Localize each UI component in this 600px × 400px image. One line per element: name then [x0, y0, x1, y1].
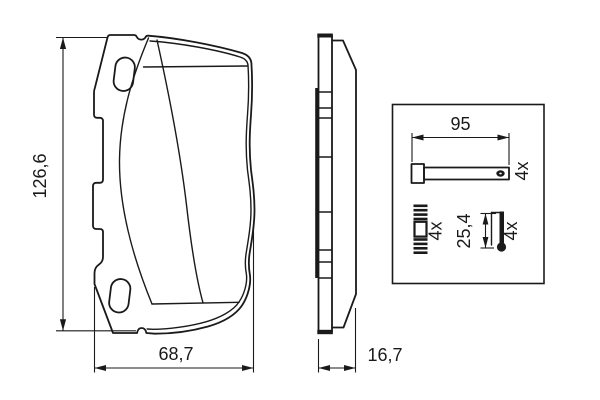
friction-chamfer-curve [157, 40, 203, 303]
spring-quantity-label: 4x [426, 221, 446, 240]
pin-hole-center [499, 173, 502, 175]
retaining-pin [412, 164, 510, 183]
pin-length-label: 95 [450, 114, 470, 134]
pin-head [412, 164, 425, 183]
side-backing-plate [319, 35, 333, 332]
friction-top-edge [144, 66, 248, 67]
hardware-box: 95 4x 4x [393, 105, 545, 284]
thickness-dimension-label: 16,7 [367, 345, 402, 365]
backing-plate-outline [93, 35, 255, 334]
dimension-width: 68,7 [95, 226, 254, 373]
friction-bottom-edge [152, 302, 239, 304]
dimension-sleeve-length: 25,4 [454, 213, 496, 248]
friction-left-curve [119, 38, 152, 304]
pin-shaft [424, 168, 509, 180]
shim-strip [315, 88, 318, 278]
lower-slot-hole [108, 278, 131, 314]
dimension-pin-length: 95 [412, 114, 509, 165]
sleeve-ball-end [497, 242, 506, 251]
side-view [315, 34, 356, 335]
plate-top-cap [317, 34, 333, 38]
brake-pad-drawing: 126,6 68,7 16,7 [0, 0, 600, 400]
front-view [93, 35, 255, 334]
plate-bottom-cap [317, 330, 333, 334]
spring-coil-top [414, 205, 428, 221]
side-friction-profile [332, 41, 356, 328]
clip-section-lines [319, 92, 333, 278]
sleeve-quantity-label: 4x [501, 221, 521, 240]
width-dimension-label: 68,7 [158, 344, 193, 364]
height-dimension-label: 126,6 [30, 153, 50, 198]
pin-quantity-label: 4x [512, 161, 532, 180]
sleeve-length-label: 25,4 [454, 213, 474, 248]
technical-drawing-page: 126,6 68,7 16,7 [0, 0, 600, 400]
upper-slot-hole [113, 56, 136, 92]
